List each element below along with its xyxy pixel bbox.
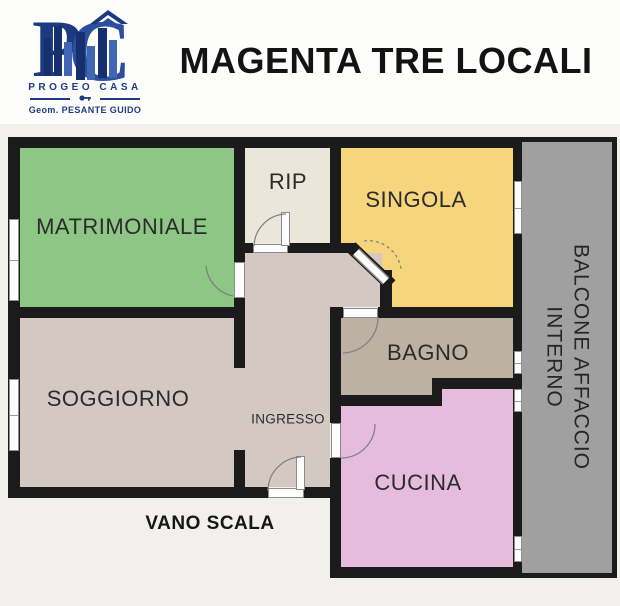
wall [330, 458, 341, 571]
outside-label-vano-scala: VANO SCALA [145, 513, 274, 535]
wall [330, 567, 522, 578]
room-label-matrimoniale: MATRIMONIALE [36, 214, 208, 240]
room-label-ingresso: INGRESSO [251, 412, 325, 427]
room-cucina-notch-floor [442, 389, 513, 406]
room-label-soggiorno: SOGGIORNO [47, 386, 190, 412]
door [331, 423, 341, 458]
door [234, 262, 245, 298]
hall-upper-floor [330, 253, 382, 307]
room-label-bagno: BAGNO [387, 340, 469, 366]
wall [432, 378, 522, 389]
wall [378, 307, 513, 318]
floor-plan: MATRIMONIALE RIP SINGOLA BAGNO SOGGIORNO… [0, 124, 620, 606]
room-label-cucina: CUCINA [374, 470, 461, 496]
wall [234, 298, 245, 368]
room-ingresso-floor [245, 253, 330, 487]
window [9, 219, 19, 301]
wall [8, 487, 268, 498]
room-label-singola: SINGOLA [365, 187, 466, 213]
room-label-balcone: BALCONE AFFACCIO INTERNO [540, 137, 595, 577]
hall-soggiorno-opening [234, 368, 245, 450]
balcony-wall [612, 137, 617, 578]
window [9, 379, 19, 451]
wall [288, 243, 355, 253]
wall [330, 137, 341, 253]
door [343, 308, 378, 318]
room-label-rip: RIP [269, 169, 307, 195]
wall [8, 137, 513, 148]
window [514, 351, 522, 374]
window [514, 389, 522, 412]
door-leaf [281, 212, 290, 246]
window [514, 181, 522, 234]
wall [330, 395, 442, 406]
wall [8, 307, 245, 318]
window [514, 536, 522, 562]
entrance-door-leaf [296, 456, 305, 490]
wall [234, 243, 253, 253]
